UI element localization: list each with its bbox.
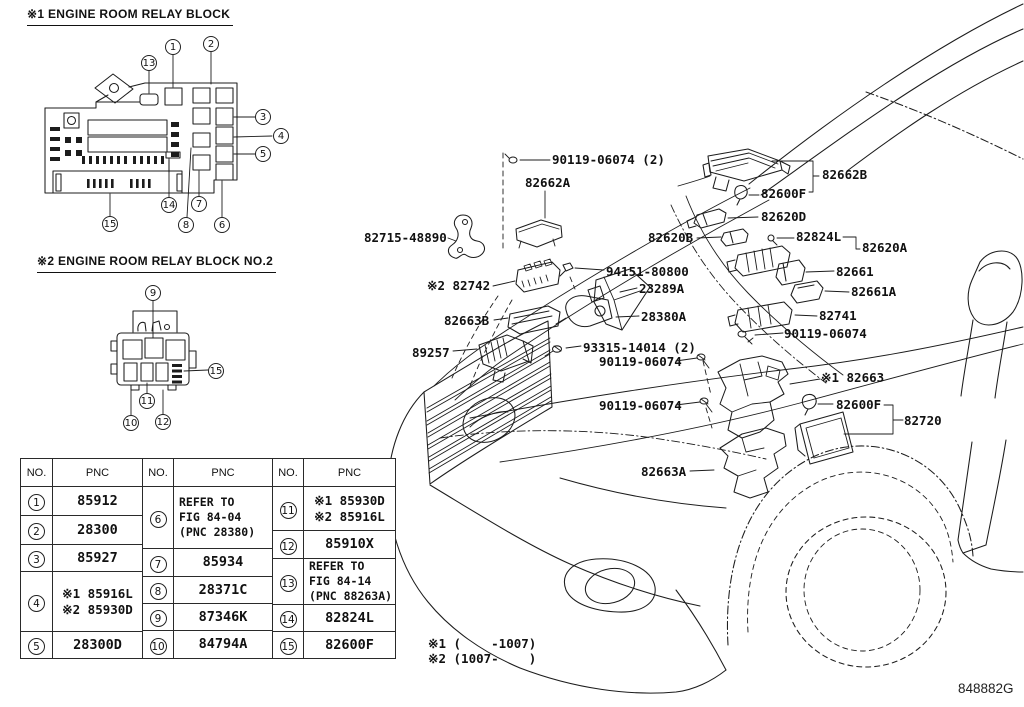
- callout-6: 6: [214, 217, 230, 233]
- row-number-badge: 2: [28, 523, 45, 540]
- pnc-table-group-c: NO. PNC 11 ※1 85930D ※2 85916L 12 85910X…: [272, 458, 396, 659]
- col-header-no: NO.: [21, 459, 53, 487]
- pnc-value: 28300D: [53, 632, 143, 659]
- part-label-82620a: 82620A: [862, 241, 907, 255]
- row-number-badge: 6: [150, 511, 167, 528]
- row-number-badge: 1: [28, 494, 45, 511]
- col-header-pnc: PNC: [174, 459, 273, 487]
- table-row: 8 28371C: [143, 577, 273, 604]
- table-row: 2 28300: [21, 516, 143, 545]
- table-row: 10 84794A: [143, 631, 273, 659]
- part-label-82620b: 82620B: [648, 231, 693, 245]
- part-label-82620d: 82620D: [761, 210, 806, 224]
- part-label-82742: ※2 82742: [427, 279, 490, 293]
- row-number-badge: 4: [28, 595, 45, 612]
- table-row: 15 82600F: [273, 632, 396, 659]
- row-number-badge: 14: [280, 611, 297, 628]
- pnc-value: ※1 85930D ※2 85916L: [304, 487, 396, 531]
- part-label-82720: 82720: [904, 414, 942, 428]
- table-row: 6 REFER TO FIG 84-04 (PNC 28380): [143, 487, 273, 549]
- row-number-badge: 7: [150, 556, 167, 573]
- pnc-value: 82824L: [304, 605, 396, 632]
- callout-15: 15: [102, 216, 118, 232]
- callout-12: 12: [155, 414, 171, 430]
- section-title-relay-block-1: ※1 ENGINE ROOM RELAY BLOCK: [27, 7, 233, 26]
- callout-13: 13: [141, 55, 157, 71]
- table-row: 12 85910X: [273, 531, 396, 559]
- row-number-badge: 9: [150, 610, 167, 627]
- note-1: ※1 ( -1007): [428, 636, 536, 651]
- pnc-value: 85912: [53, 487, 143, 516]
- callout-15b: 15: [208, 363, 224, 379]
- row-number-badge: 3: [28, 551, 45, 568]
- part-label-82663a: 82663A: [641, 465, 686, 479]
- part-label-89257: 89257: [412, 346, 450, 360]
- callout-5: 5: [255, 146, 271, 162]
- figure-code: 848882G: [958, 681, 1014, 696]
- pnc-table-group-b: NO. PNC 6 REFER TO FIG 84-04 (PNC 28380)…: [142, 458, 273, 659]
- table-row: 13 REFER TO FIG 84-14 (PNC 88263A): [273, 559, 396, 605]
- part-label-82600f-top: 82600F: [761, 187, 806, 201]
- pnc-value: 85927: [53, 545, 143, 572]
- part-label-82661a: 82661A: [851, 285, 896, 299]
- pnc-value: 82600F: [304, 632, 396, 659]
- row-number-badge: 5: [28, 638, 45, 655]
- callout-2: 2: [203, 36, 219, 52]
- part-label-82663: ※1 82663: [821, 371, 884, 385]
- row-number-badge: 12: [280, 538, 297, 555]
- row-number-badge: 10: [150, 638, 167, 655]
- row-number-badge: 13: [280, 575, 297, 592]
- table-row: 11 ※1 85930D ※2 85916L: [273, 487, 396, 531]
- part-label-82600f-low: 82600F: [836, 398, 881, 412]
- table-row: 14 82824L: [273, 605, 396, 632]
- callout-11: 11: [139, 393, 155, 409]
- car-outline: [388, 4, 1023, 693]
- callout-1: 1: [165, 39, 181, 55]
- table-row: 3 85927: [21, 545, 143, 572]
- row-number-badge: 15: [280, 638, 297, 655]
- part-label-90119-06074-mid1: 90119-06074: [599, 355, 682, 369]
- pnc-table-group-a: NO. PNC 1 85912 2 28300 3 85927 4 ※1 859…: [20, 458, 143, 659]
- pnc-value: 28371C: [174, 577, 273, 604]
- callout-9: 9: [145, 285, 161, 301]
- part-label-82715-48890: 82715-48890: [364, 231, 447, 245]
- pnc-value: REFER TO FIG 84-04 (PNC 28380): [174, 487, 273, 549]
- pnc-value: 85910X: [304, 531, 396, 559]
- part-label-82662a: 82662A: [525, 176, 570, 190]
- pnc-value: 85934: [174, 549, 273, 577]
- table-row: 1 85912: [21, 487, 143, 516]
- callout-7: 7: [191, 196, 207, 212]
- part-label-82662b: 82662B: [822, 168, 867, 182]
- table-row: 4 ※1 85916L ※2 85930D: [21, 572, 143, 632]
- pnc-value: REFER TO FIG 84-14 (PNC 88263A): [304, 559, 396, 605]
- part-label-90119-06074-right: 90119-06074: [784, 327, 867, 341]
- part-label-82661: 82661: [836, 265, 874, 279]
- row-number-badge: 11: [280, 502, 297, 519]
- row-number-badge: 8: [150, 583, 167, 600]
- callout-14: 14: [161, 197, 177, 213]
- part-label-82741: 82741: [819, 309, 857, 323]
- col-header-pnc: PNC: [304, 459, 396, 487]
- table-row: 7 85934: [143, 549, 273, 577]
- callout-8: 8: [178, 217, 194, 233]
- relay-block-1-drawing: [45, 52, 272, 217]
- pnc-value: ※1 85916L ※2 85930D: [53, 572, 143, 632]
- note-2: ※2 (1007- ): [428, 651, 536, 666]
- part-label-90119-06074-mid2: 90119-06074: [599, 399, 682, 413]
- col-header-no: NO.: [273, 459, 304, 487]
- part-label-28380a: 28380A: [641, 310, 686, 324]
- col-header-no: NO.: [143, 459, 174, 487]
- section-title-relay-block-2: ※2 ENGINE ROOM RELAY BLOCK NO.2: [37, 254, 276, 273]
- relay-block-2-drawing: [111, 301, 208, 415]
- table-row: 9 87346K: [143, 604, 273, 631]
- parts-diagram-page: ※1 ENGINE ROOM RELAY BLOCK ※2 ENGINE ROO…: [0, 0, 1024, 707]
- pnc-value: 87346K: [174, 604, 273, 631]
- pnc-table: NO. PNC 1 85912 2 28300 3 85927 4 ※1 859…: [20, 458, 395, 659]
- callout-3: 3: [255, 109, 271, 125]
- table-row: 5 28300D: [21, 632, 143, 659]
- callout-4: 4: [273, 128, 289, 144]
- part-label-23289a: 23289A: [639, 282, 684, 296]
- col-header-pnc: PNC: [53, 459, 143, 487]
- part-label-82663b: 82663B: [444, 314, 489, 328]
- part-label-90119-06074-top: 90119-06074 (2): [552, 153, 665, 167]
- part-label-94151-80800: 94151-80800: [606, 265, 689, 279]
- callout-10: 10: [123, 415, 139, 431]
- pnc-value: 84794A: [174, 631, 273, 659]
- pnc-value: 28300: [53, 516, 143, 545]
- part-label-82824l: 82824L: [796, 230, 841, 244]
